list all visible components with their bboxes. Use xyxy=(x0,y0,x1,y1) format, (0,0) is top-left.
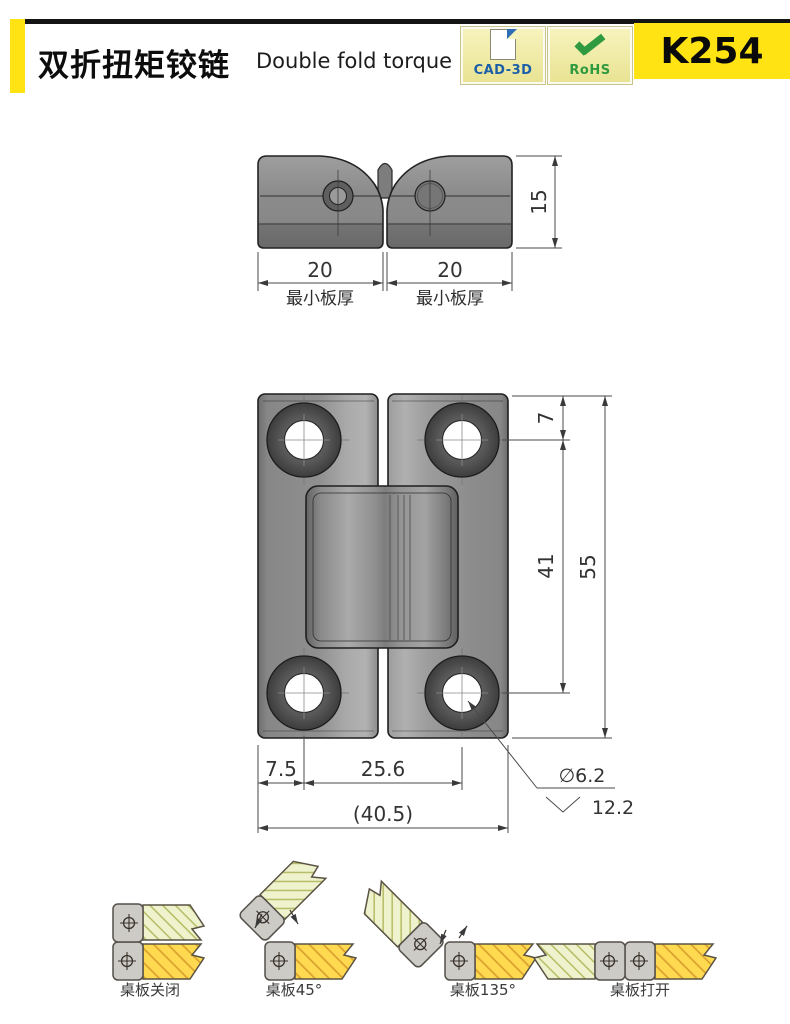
position-diagram-45 xyxy=(238,851,356,980)
dim-side-width-left: 20 xyxy=(307,258,332,282)
technical-drawing-canvas: 20 20 15 最小板厚 最小板厚 xyxy=(0,0,790,1024)
dim-side-thickness: 15 xyxy=(527,189,551,214)
dim-overall-width: (40.5) xyxy=(353,802,413,826)
front-view-barrel xyxy=(306,486,458,648)
dim-hole-diameter: ∅6.2 xyxy=(559,765,606,787)
front-view-drawing xyxy=(258,394,508,738)
dim-hole-top-offset: 7 xyxy=(534,412,558,425)
dim-edge-to-hole: 7.5 xyxy=(265,757,297,781)
position-diagram-closed xyxy=(113,904,204,980)
position-label-closed: 桌板关闭 xyxy=(120,981,180,999)
catalog-page: 双折扭矩铰链 Double fold torque hinge CAD-3D R… xyxy=(0,0,790,1024)
position-label-45: 桌板45° xyxy=(266,981,323,999)
countersink-symbol xyxy=(546,797,580,812)
dim-hole-horizontal-spacing: 25.6 xyxy=(361,757,406,781)
position-diagram-135 xyxy=(354,878,536,980)
side-view-drawing xyxy=(258,156,512,248)
position-label-open: 桌板打开 xyxy=(610,981,670,999)
min-plate-thickness-label-right: 最小板厚 xyxy=(416,289,484,309)
dim-hole-vertical-spacing: 41 xyxy=(534,553,558,578)
dim-side-width-right: 20 xyxy=(437,258,462,282)
position-label-135: 桌板135° xyxy=(450,981,516,999)
dim-countersink-diameter: 12.2 xyxy=(592,797,634,819)
dim-overall-height: 55 xyxy=(576,554,600,579)
position-diagram-open xyxy=(534,942,716,980)
min-plate-thickness-label-left: 最小板厚 xyxy=(286,289,354,309)
